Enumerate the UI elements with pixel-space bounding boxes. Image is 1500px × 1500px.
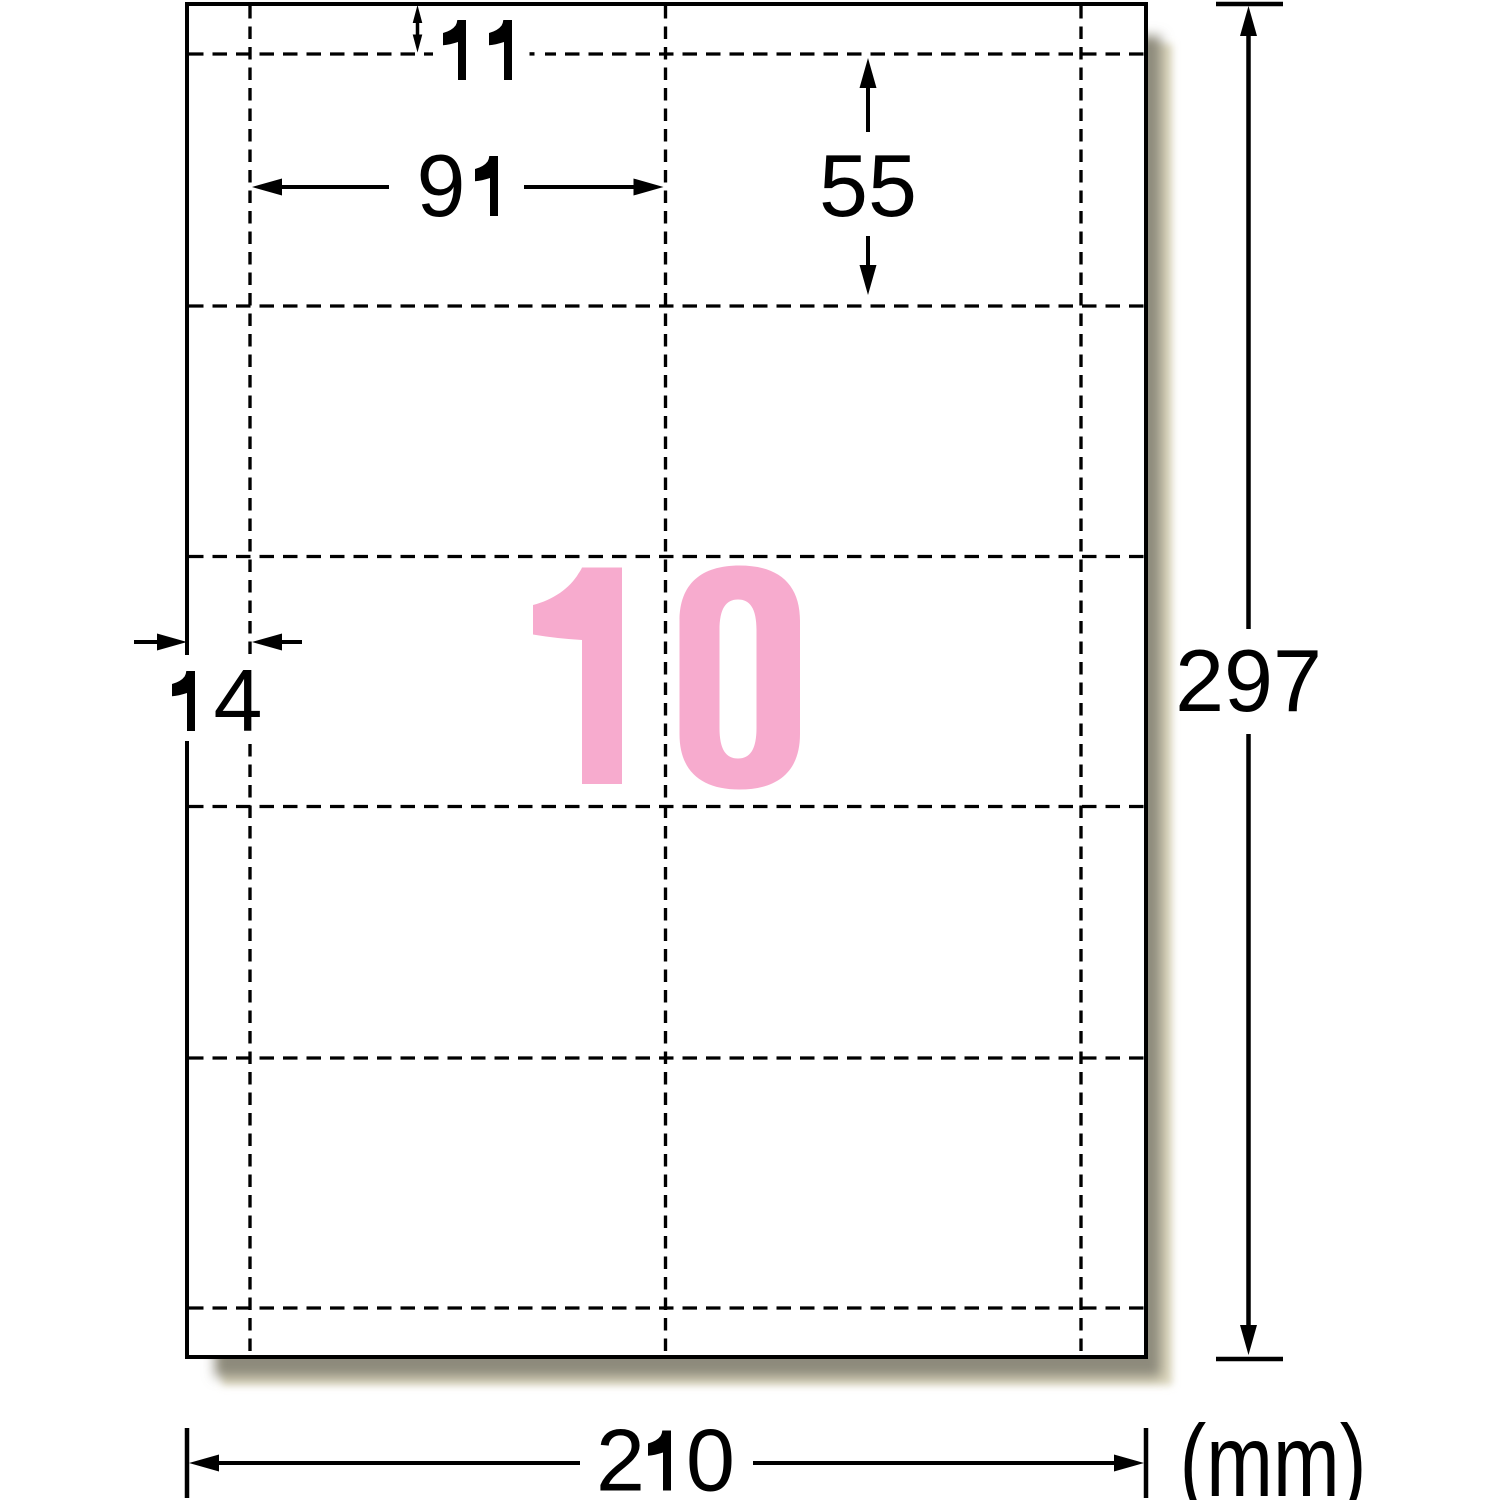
svg-text:55: 55	[819, 136, 917, 235]
svg-text:0: 0	[686, 1411, 735, 1500]
svg-text:(mm): (mm)	[1180, 1405, 1367, 1500]
svg-text:9: 9	[417, 136, 466, 235]
svg-text:297: 297	[1175, 631, 1322, 730]
svg-text:2: 2	[596, 1411, 645, 1500]
svg-text:4: 4	[214, 651, 263, 750]
